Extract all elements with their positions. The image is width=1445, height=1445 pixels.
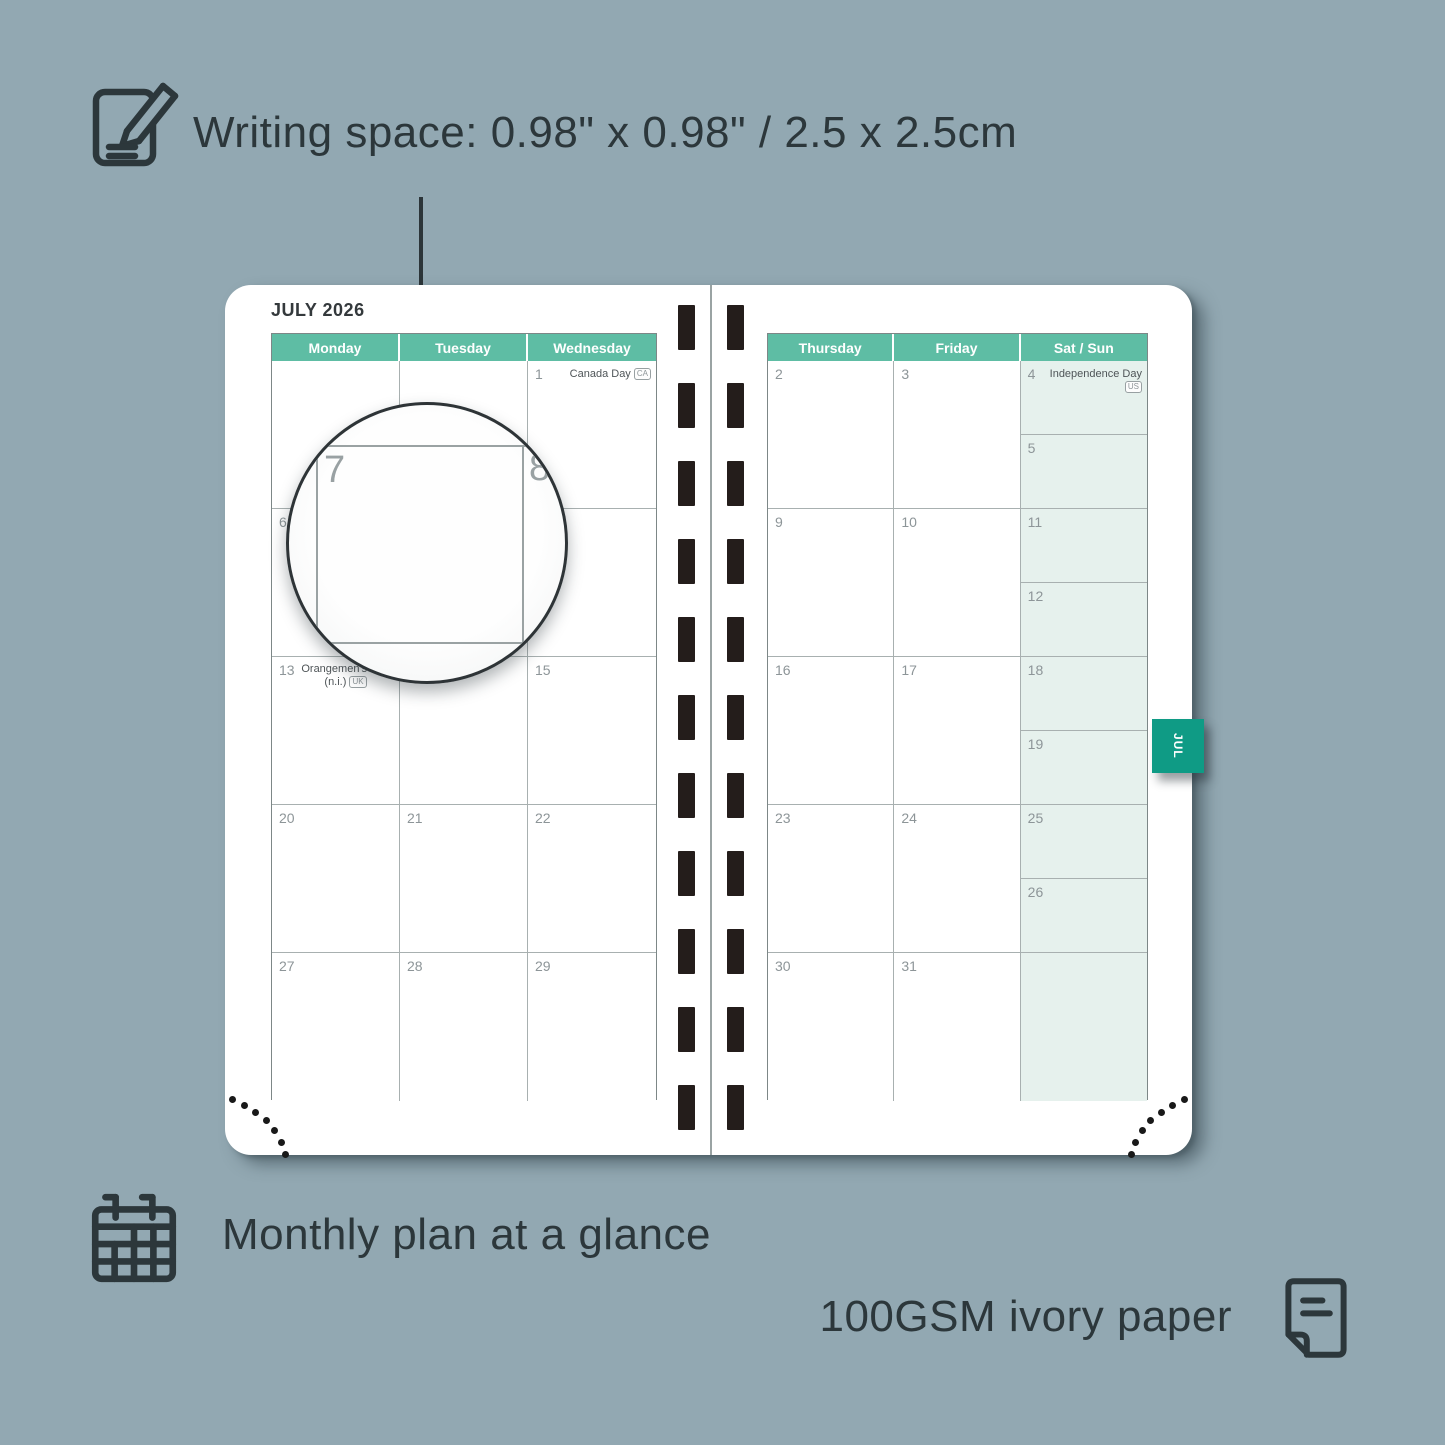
page-gutter	[710, 285, 712, 1155]
calendar-cell: 29	[528, 953, 656, 1101]
binding-hole	[727, 851, 744, 896]
magnifier-circle: 7 8	[286, 402, 568, 684]
day-header: Sat / Sun	[1021, 334, 1147, 361]
day-number: 6	[279, 514, 287, 530]
day-number: 26	[1028, 884, 1044, 900]
calendar-cell: 30	[768, 953, 894, 1101]
day-header: Friday	[894, 334, 1020, 361]
stitch-dot	[1181, 1096, 1188, 1103]
holiday-label: Canada Day CA	[550, 368, 651, 381]
calendar-cell	[1021, 953, 1147, 1101]
day-number: 1	[535, 366, 543, 382]
binding-hole	[727, 695, 744, 740]
day-number: 2	[775, 366, 783, 382]
calendar-cell: 1819	[1021, 657, 1147, 805]
stitch-dot	[1169, 1102, 1176, 1109]
stitch-dot	[1139, 1127, 1146, 1134]
day-number: 15	[535, 662, 551, 678]
monthly-plan-text: Monthly plan at a glance	[222, 1210, 711, 1260]
calendar-cell: 28	[400, 953, 528, 1101]
calendar-cell: 13Orangemen's Day (n.i.) UK	[272, 657, 400, 805]
country-badge: UK	[349, 676, 366, 688]
calendar-half-cell: 19	[1021, 731, 1147, 804]
calendar-cell: 20	[272, 805, 400, 953]
day-number: 12	[1028, 588, 1044, 604]
binding-hole	[727, 461, 744, 506]
day-number: 9	[775, 514, 783, 530]
calendar-cell: 27	[272, 953, 400, 1101]
calendar-cell: 17	[894, 657, 1020, 805]
binding-hole	[678, 929, 695, 974]
calendar-cell: 23	[768, 805, 894, 953]
stitch-dot	[271, 1127, 278, 1134]
binding-hole	[678, 1007, 695, 1052]
day-number: 20	[279, 810, 295, 826]
holiday-label: Independence Day US	[1043, 368, 1142, 394]
calendar-cell: 21	[400, 805, 528, 953]
day-number: 10	[901, 514, 917, 530]
calendar-cell: 1112	[1021, 509, 1147, 657]
stitch-dot	[1147, 1117, 1154, 1124]
stitch-dot	[241, 1102, 248, 1109]
binding-hole	[727, 539, 744, 584]
product-image: Writing space: 0.98" x 0.98" / 2.5 x 2.5…	[0, 0, 1445, 1445]
calendar-cell: 4Independence Day US5	[1021, 361, 1147, 509]
day-number: 17	[901, 662, 917, 678]
binding-hole	[678, 617, 695, 662]
calendar-half-cell: 4Independence Day US	[1021, 361, 1147, 435]
day-number: 3	[901, 366, 909, 382]
pencil-paper-icon	[83, 66, 183, 176]
binding-hole	[727, 617, 744, 662]
day-number: 18	[1028, 662, 1044, 678]
month-title: JULY 2026	[271, 300, 365, 321]
day-number: 30	[775, 958, 791, 974]
calendar-half-cell: 11	[1021, 509, 1147, 583]
country-badge: CA	[634, 368, 651, 380]
binding-hole	[727, 1085, 744, 1130]
month-tab: JUL	[1152, 719, 1204, 773]
calendar-cell: 3	[894, 361, 1020, 509]
binding-hole	[678, 773, 695, 818]
binding-hole	[727, 1007, 744, 1052]
stitch-dot	[229, 1096, 236, 1103]
month-tab-label: JUL	[1171, 733, 1185, 759]
binding-hole	[678, 461, 695, 506]
binding-hole	[727, 773, 744, 818]
calendar-cell: 31	[894, 953, 1020, 1101]
magnified-day-number: 8	[529, 447, 550, 490]
binding-hole	[678, 305, 695, 350]
magnified-day-number: 7	[324, 449, 345, 492]
day-number: 4	[1028, 366, 1036, 382]
magnified-writing-square	[316, 445, 318, 643]
day-number: 27	[279, 958, 295, 974]
stitch-dot	[282, 1151, 289, 1158]
binding-hole	[678, 851, 695, 896]
calendar-cell: 2526	[1021, 805, 1147, 953]
day-number: 13	[279, 662, 295, 678]
day-header: Monday	[272, 334, 400, 361]
writing-space-text: Writing space: 0.98" x 0.98" / 2.5 x 2.5…	[193, 108, 1017, 158]
calendar-cell: 15	[528, 657, 656, 805]
stitch-dot	[1158, 1109, 1165, 1116]
day-number: 21	[407, 810, 423, 826]
paper-spec-text: 100GSM ivory paper	[819, 1292, 1232, 1342]
stitch-dot	[263, 1117, 270, 1124]
magnified-grid-line	[315, 445, 565, 447]
day-number: 11	[1028, 514, 1043, 530]
binding-hole	[727, 305, 744, 350]
calendar-cell: 10	[894, 509, 1020, 657]
right-page-grid: ThursdayFridaySat / Sun234Independence D…	[767, 333, 1148, 1100]
country-badge: US	[1125, 381, 1142, 393]
day-number: 29	[535, 958, 551, 974]
day-number: 24	[901, 810, 917, 826]
day-number: 22	[535, 810, 551, 826]
calendar-half-cell: 12	[1021, 583, 1147, 656]
day-header: Tuesday	[400, 334, 528, 361]
paper-sheet-icon	[1270, 1262, 1362, 1374]
stitch-dot	[1132, 1139, 1139, 1146]
calendar-half-cell: 5	[1021, 435, 1147, 508]
day-number: 5	[1028, 440, 1036, 456]
calendar-cell: 9	[768, 509, 894, 657]
calendar-cell: 16	[768, 657, 894, 805]
calendar-half-cell: 26	[1021, 879, 1147, 952]
magnified-grid-line	[522, 445, 524, 681]
day-number: 19	[1028, 736, 1044, 752]
day-number: 31	[901, 958, 917, 974]
binding-hole	[678, 695, 695, 740]
magnified-writing-square	[316, 642, 523, 644]
calendar-grid-icon	[83, 1188, 185, 1292]
stitch-dot	[1128, 1151, 1135, 1158]
binding-hole	[727, 383, 744, 428]
calendar-cell: 24	[894, 805, 1020, 953]
binding-hole	[678, 383, 695, 428]
day-header: Wednesday	[528, 334, 656, 361]
day-header: Thursday	[768, 334, 894, 361]
calendar-half-cell: 18	[1021, 657, 1147, 731]
stitch-dot	[252, 1109, 259, 1116]
day-number: 25	[1028, 810, 1044, 826]
binding-hole	[727, 929, 744, 974]
day-number: 23	[775, 810, 791, 826]
stitch-dot	[278, 1139, 285, 1146]
binding-hole	[678, 539, 695, 584]
calendar-half-cell: 25	[1021, 805, 1147, 879]
day-number: 16	[775, 662, 791, 678]
calendar-cell: 22	[528, 805, 656, 953]
day-number: 28	[407, 958, 423, 974]
calendar-cell: 2	[768, 361, 894, 509]
binding-hole	[678, 1085, 695, 1130]
